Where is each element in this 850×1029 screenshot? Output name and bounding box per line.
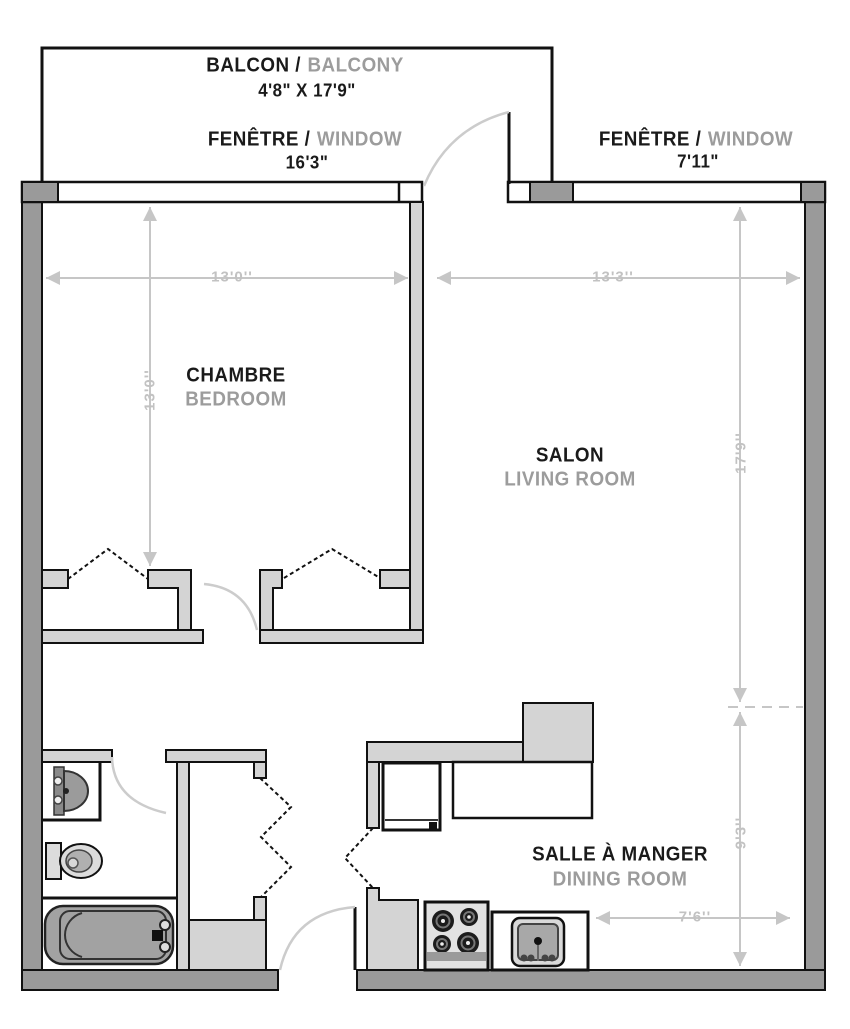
wall-bottom-right <box>357 970 825 990</box>
dining-room-label-fr: SALLE À MANGER <box>532 844 708 867</box>
closet-bifold-door-left <box>68 549 148 579</box>
bathroom-sink <box>54 767 88 815</box>
toilet <box>46 843 102 879</box>
wall-bottom-left <box>22 970 278 990</box>
window-left-label: FENÊTRE / WINDOW <box>208 129 402 152</box>
coat-closet-bifold-door <box>345 828 373 888</box>
floor-plan-drawing <box>0 0 850 1029</box>
kitchen-peninsula <box>523 703 593 762</box>
bedroom-door-swing-arc <box>204 584 257 630</box>
balcony-door-swing-arc <box>424 112 509 186</box>
dining-room-label-en: DINING ROOM <box>553 869 688 892</box>
living-room-label-en: LIVING ROOM <box>504 469 636 492</box>
bedroom-window <box>22 182 422 202</box>
window-left-label-fr: FENÊTRE / <box>208 129 310 152</box>
stove <box>425 902 488 970</box>
window-right-label-en: WINDOW <box>708 129 793 152</box>
living-room-label-fr: SALON <box>536 445 604 468</box>
tub-spout <box>152 930 163 941</box>
entrance-door <box>280 907 355 970</box>
kitchen-counter <box>453 762 592 818</box>
dining-room-width-dim: 7'6'' <box>679 909 711 926</box>
kitchen-sink <box>492 912 588 970</box>
bedroom-wall <box>410 202 423 643</box>
bedroom-closets <box>42 549 423 643</box>
balcony-label-fr: BALCON / <box>206 55 301 78</box>
tub-knob <box>160 942 170 952</box>
balcony-door <box>424 112 509 186</box>
window-left-size: 16'3" <box>286 153 329 174</box>
bathroom <box>42 750 177 964</box>
tub-knob <box>160 920 170 930</box>
window-left-label-en: WINDOW <box>317 129 402 152</box>
balcony-label: BALCON / BALCONY <box>206 55 403 78</box>
hall-closet-bifold-door <box>260 778 291 897</box>
entrance-door-swing-arc <box>280 907 355 970</box>
window-right-size: 7'11" <box>677 152 719 173</box>
bedroom-width-dim: 13'0'' <box>211 269 253 286</box>
bathroom-door-swing-arc <box>112 757 166 813</box>
balcony-label-en: BALCONY <box>307 55 403 78</box>
dining-room-depth-dim: 9'3'' <box>733 817 750 849</box>
living-room-depth-dim: 17'9'' <box>733 432 750 474</box>
balcony-size: 4'8" X 17'9" <box>258 81 355 102</box>
bedroom-depth-dim: 13'0'' <box>142 369 159 411</box>
wall-right <box>805 182 825 990</box>
bedroom-label-en: BEDROOM <box>185 389 286 412</box>
bedroom-label-fr: CHAMBRE <box>186 365 285 388</box>
fridge <box>383 763 440 830</box>
living-room-width-dim: 13'3'' <box>592 269 634 286</box>
window-right-label-fr: FENÊTRE / <box>599 129 701 152</box>
hall-closet <box>166 750 291 970</box>
window-right-label: FENÊTRE / WINDOW <box>599 129 793 152</box>
floor-plan: BALCON / BALCONY 4'8" X 17'9" FENÊTRE / … <box>0 0 850 1029</box>
closet-bifold-door-right <box>284 549 380 578</box>
bathtub <box>45 906 173 964</box>
kitchen-counter-wall <box>367 742 525 762</box>
wall-left <box>22 182 42 990</box>
